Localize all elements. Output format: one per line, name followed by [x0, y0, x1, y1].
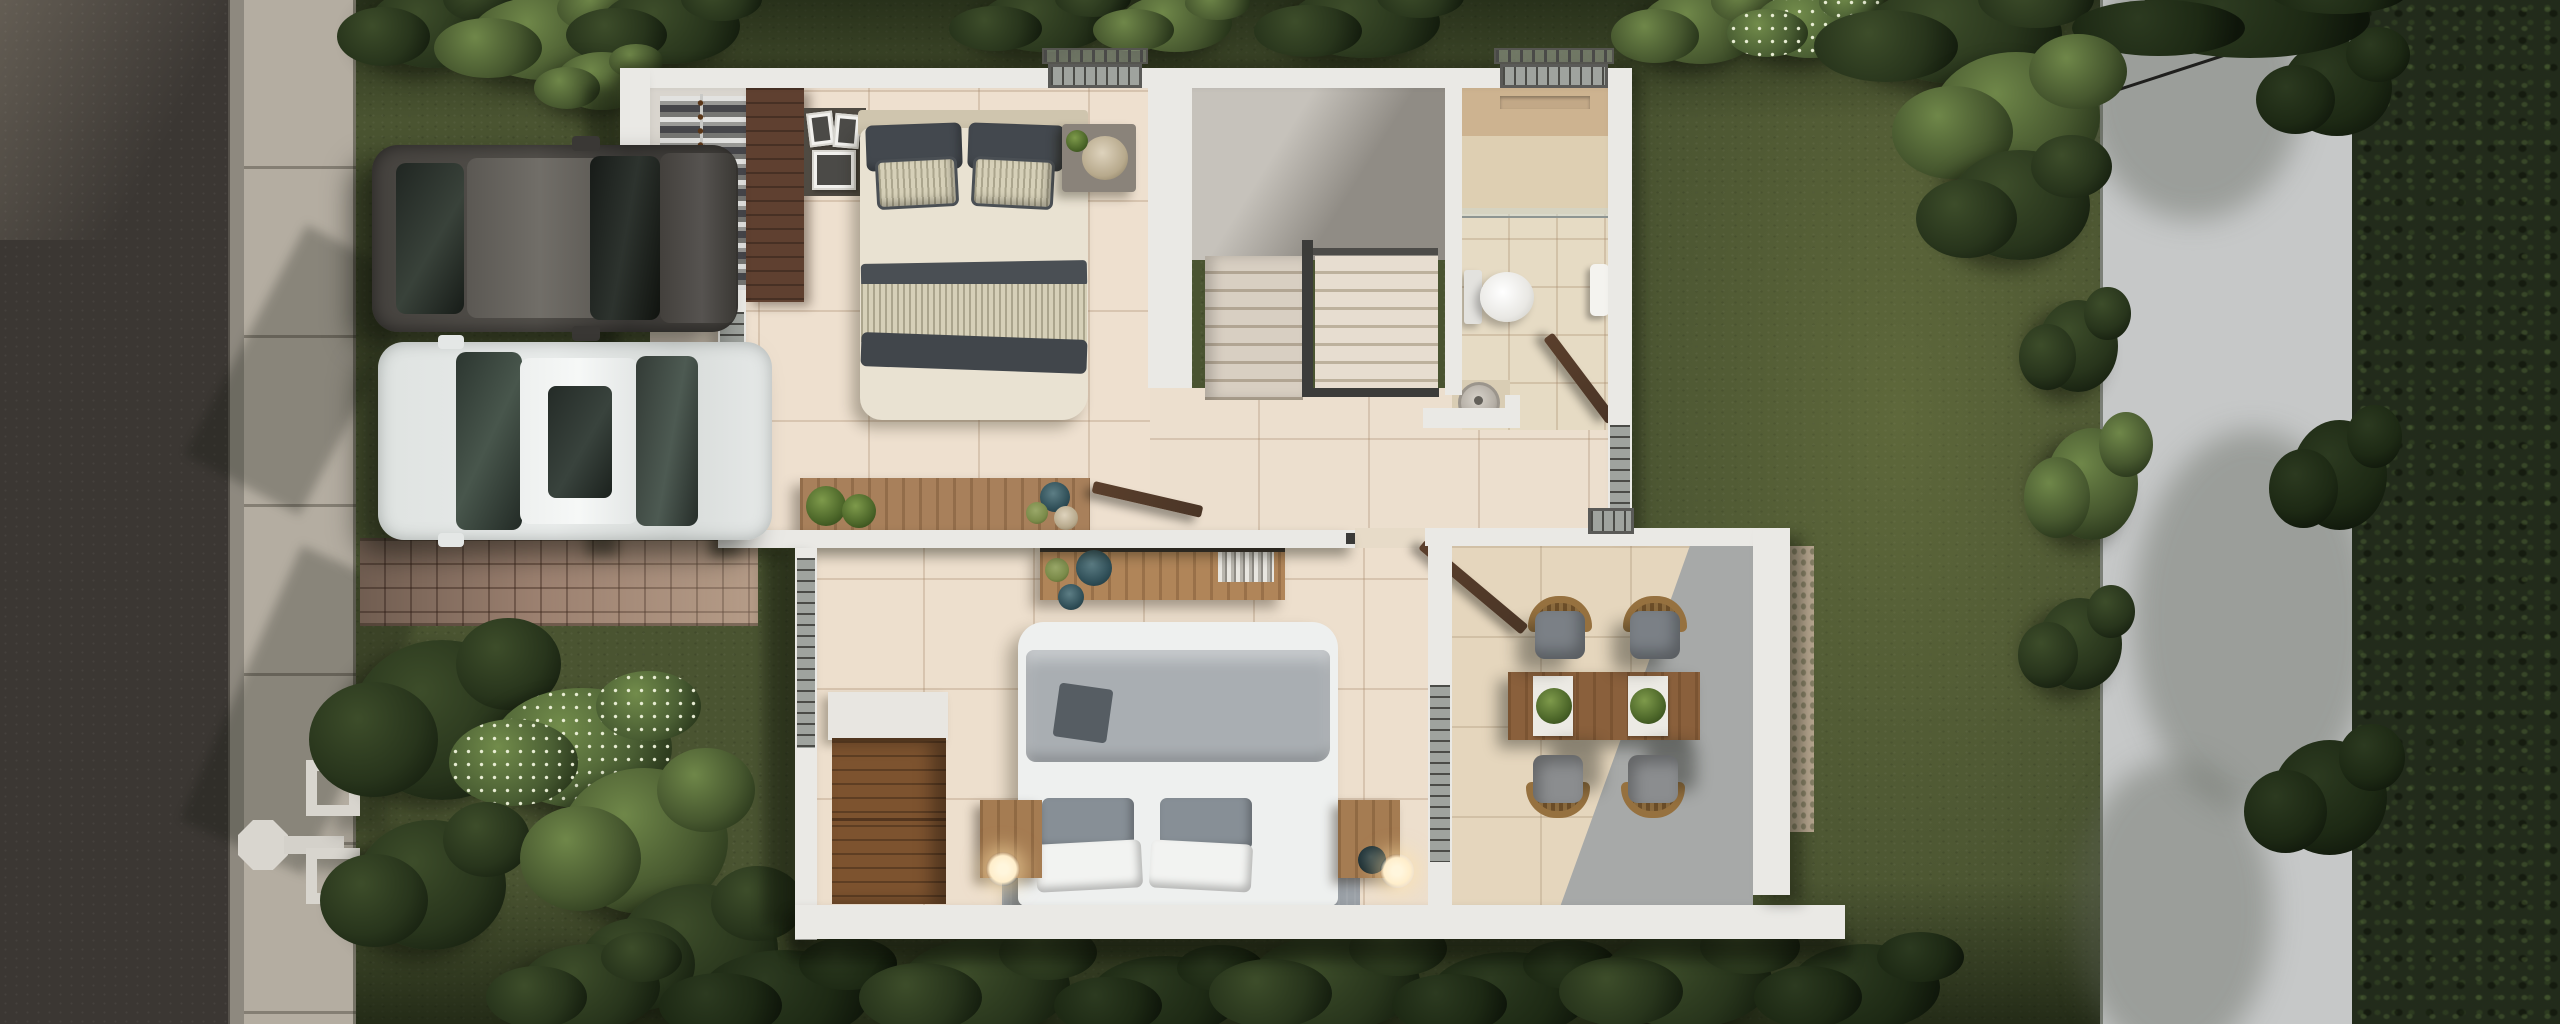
stair-handrail — [1313, 388, 1439, 397]
table-lamp-left — [986, 852, 1020, 886]
suv-mirror — [572, 326, 600, 341]
street-lamp-base — [238, 820, 288, 870]
bush — [356, 820, 506, 950]
bench-vase-green — [1026, 502, 1048, 524]
bedroom1-top-window — [1048, 64, 1142, 88]
stair-void — [1192, 88, 1445, 260]
wall-south-master-terrace — [795, 905, 1845, 939]
bush — [520, 944, 660, 1024]
table-lamp-right — [1380, 854, 1414, 888]
chair-cushion — [1628, 755, 1678, 803]
wall-terrace-east — [1753, 528, 1790, 895]
dark-suv — [372, 145, 738, 332]
master-pillow-white — [1035, 839, 1143, 892]
bedroom1-window-outer-railing — [1042, 48, 1148, 64]
bathroom-window-outer-railing — [1494, 48, 1614, 64]
terrace-chair — [1621, 750, 1685, 818]
dense-trees-right — [2352, 0, 2560, 1024]
sedan-rear-glass — [636, 356, 698, 526]
floor-plan-render — [0, 0, 2560, 1024]
bathroom-top-window — [1500, 64, 1608, 88]
bed1-pillow-striped — [971, 156, 1056, 210]
dresser-drawer-line — [832, 818, 946, 821]
master-window-railing — [797, 558, 815, 748]
bush — [2046, 428, 2138, 540]
photo-frame — [812, 150, 856, 190]
sideboard-books — [1218, 552, 1274, 582]
wall-vanity-return — [1505, 395, 1520, 428]
gravel-strip — [1790, 546, 1814, 832]
tree-canopy-overhang — [2292, 420, 2387, 530]
doorway-floor — [1355, 528, 1430, 548]
wall-south-long — [718, 530, 1355, 548]
suv-hood — [660, 153, 736, 323]
suv-rear-glass — [396, 163, 464, 314]
chair-cushion — [1535, 611, 1585, 659]
stair-flight-left — [1205, 256, 1303, 400]
tree-canopy-overhang — [2272, 740, 2387, 855]
shower-floor — [1462, 136, 1608, 214]
dresser-top — [828, 692, 948, 740]
table-plant — [1536, 688, 1572, 724]
stair-handrail — [1302, 240, 1313, 397]
bush — [2038, 598, 2122, 690]
stair-handrail — [1302, 248, 1438, 255]
paver-walkway — [360, 538, 758, 626]
shower-niche — [1500, 96, 1590, 109]
suv-windshield — [590, 156, 660, 320]
wall-stair-west — [1148, 88, 1192, 388]
master-throw-square — [1053, 683, 1114, 744]
sideboard-vase-teal — [1076, 550, 1112, 586]
photo-frame — [806, 111, 836, 148]
white-sedan — [378, 342, 772, 540]
door-stop — [1346, 533, 1355, 544]
dresser-body — [832, 738, 946, 904]
hall-window — [1588, 508, 1634, 534]
table-plant — [1630, 688, 1666, 724]
bench-vase-beige — [1054, 506, 1078, 530]
suv-mirror — [572, 136, 600, 151]
stair-flight-right — [1315, 256, 1438, 392]
chair-cushion — [1630, 611, 1680, 659]
road-light-patch — [0, 0, 260, 240]
bed1-pillow-striped — [875, 156, 960, 210]
master-pillow-white — [1149, 839, 1253, 892]
bush — [2038, 300, 2118, 392]
nightstand-tray — [1082, 136, 1128, 180]
shower-glass-partition — [1462, 208, 1608, 218]
sedan-sunroof — [548, 386, 612, 498]
terrace-chair — [1528, 596, 1592, 664]
sideboard-vase-teal — [1058, 584, 1084, 610]
sedan-windshield — [456, 352, 522, 530]
house-shadow-west — [764, 548, 794, 928]
sedan-mirror — [438, 533, 464, 547]
house-shadow-south — [792, 938, 1852, 962]
chair-cushion — [1533, 755, 1583, 803]
terrace-chair — [1526, 750, 1590, 818]
asphalt-road — [0, 0, 228, 1024]
toilet-bowl — [1480, 272, 1534, 322]
sedan-mirror — [438, 335, 464, 349]
sink-drain — [1474, 396, 1483, 405]
wardrobe-panel — [746, 88, 804, 302]
nightstand-plant — [1066, 130, 1088, 152]
wall-stair-bathroom — [1445, 88, 1462, 395]
terrace-chair — [1623, 596, 1687, 664]
bench-plant — [842, 494, 876, 528]
bench-plant — [806, 486, 846, 526]
road-curb — [228, 0, 244, 1024]
large-garden-bush — [1950, 150, 2090, 260]
sideboard-vase-green — [1045, 558, 1069, 582]
terrace-window-railing — [1430, 685, 1450, 862]
towel-on-rail — [1590, 264, 1609, 316]
